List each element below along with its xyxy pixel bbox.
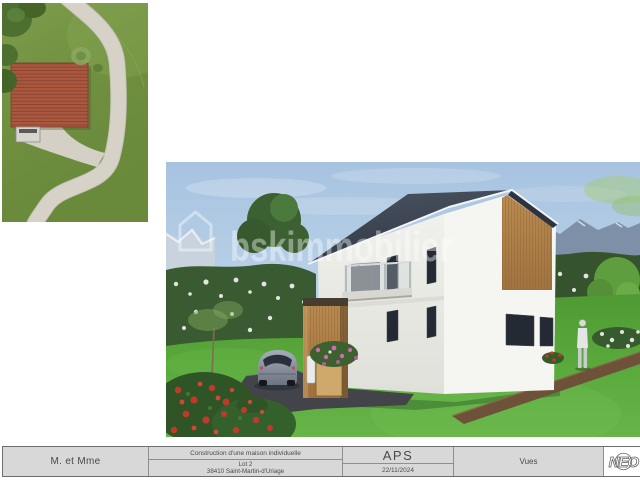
company-logo-text: NEO bbox=[609, 455, 640, 471]
render-svg: bskimmobilier bbox=[166, 162, 640, 437]
project-title: Construction d'une maison individuelle bbox=[149, 447, 342, 460]
company-logo-icon: NEO bbox=[607, 448, 640, 475]
drawing-sheet: bskimmobilier M. et Mme Construction d'u… bbox=[0, 0, 640, 480]
client-name: M. et Mme bbox=[51, 456, 101, 467]
sheet-name: Vues bbox=[520, 457, 538, 466]
titleblock-client-cell: M. et Mme bbox=[3, 447, 149, 476]
watermark-text: bskimmobilier bbox=[230, 223, 452, 270]
site-plan-svg bbox=[2, 3, 148, 222]
plan-house-roof bbox=[11, 63, 91, 130]
titleblock-project-cell: Construction d'une maison individuelle L… bbox=[149, 447, 343, 476]
issue-date: 22/11/2024 bbox=[343, 464, 453, 476]
company-logo: NEO bbox=[604, 447, 640, 476]
lot-number: Lot 2 bbox=[239, 461, 253, 469]
project-address: 38410 Saint-Martin-d'Uriage bbox=[207, 468, 284, 476]
titleblock-phase-cell: APS 22/11/2024 bbox=[343, 447, 454, 476]
titleblock-sheet-cell: Vues bbox=[454, 447, 604, 476]
phase-code: APS bbox=[343, 447, 453, 464]
plan-porch bbox=[16, 127, 40, 142]
house-3d-render: bskimmobilier bbox=[166, 162, 640, 437]
titleblock: M. et Mme Construction d'une maison indi… bbox=[2, 446, 640, 477]
site-plan-image bbox=[2, 3, 148, 222]
pink-flower-bed bbox=[310, 341, 358, 367]
